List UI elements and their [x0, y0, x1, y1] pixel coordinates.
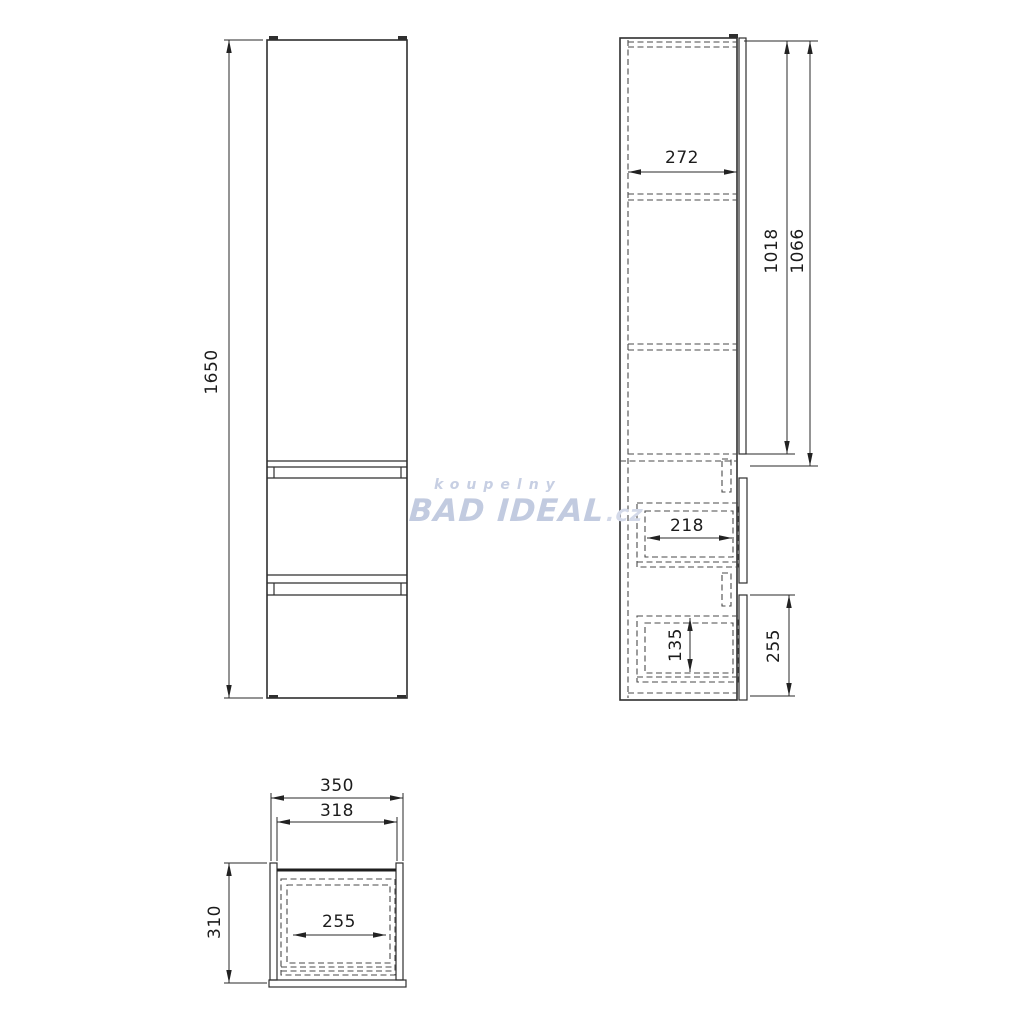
side-door-panel	[739, 38, 746, 454]
hidden-drawer-box-2	[637, 616, 738, 682]
technical-drawing-page: 1650 272 1018 1066 218 135 255 350 318 2…	[0, 0, 1024, 1024]
top-drawer-width-dimension-label: 255	[322, 912, 356, 932]
wall-bracket-right	[398, 36, 407, 40]
side-drawer-fronts	[739, 478, 747, 700]
top-width-dimension-label: 350	[320, 776, 354, 796]
side-drawer-front-height-dimension-label: 255	[764, 629, 784, 663]
hidden-handle-recess-1	[722, 459, 731, 492]
top-dimensions	[224, 793, 403, 983]
hidden-handle-recess-2	[722, 573, 731, 606]
watermark-koupelny-text: koupelny	[434, 478, 628, 492]
watermark-suffix: .cz	[605, 502, 644, 527]
top-right-side-wall	[396, 863, 403, 980]
side-drawer-depth-dimension-label: 218	[670, 516, 704, 536]
front-view	[224, 36, 407, 698]
top-view	[224, 793, 406, 987]
top-left-side-wall	[270, 863, 277, 980]
watermark: koupelny BAD IDEAL.cz	[408, 478, 628, 527]
front-cabinet-outline	[267, 36, 407, 698]
side-drawer-inner-height-dimension-label: 135	[666, 628, 686, 662]
foot-right	[397, 695, 406, 698]
side-upper-section-dimension-label: 1066	[788, 228, 808, 273]
top-front-panel	[269, 980, 406, 987]
watermark-brand: BAD IDEAL	[408, 493, 606, 529]
foot-left	[269, 695, 278, 698]
top-inner-width-dimension-label: 318	[320, 801, 354, 821]
wall-bracket-left	[269, 36, 278, 40]
wall-bracket-side	[729, 34, 738, 38]
top-depth-dimension-label: 310	[205, 905, 225, 939]
side-inner-depth-dimension-label: 272	[665, 148, 699, 168]
side-carcass	[620, 34, 738, 700]
side-hidden-lines	[620, 40, 738, 698]
watermark-brand-text: BAD IDEAL.cz	[408, 496, 630, 527]
side-view	[620, 34, 818, 700]
front-height-dimension	[224, 40, 263, 698]
front-height-dimension-label: 1650	[202, 349, 222, 394]
side-door-height-dimension-label: 1018	[762, 228, 782, 273]
side-dimensions	[628, 41, 818, 696]
